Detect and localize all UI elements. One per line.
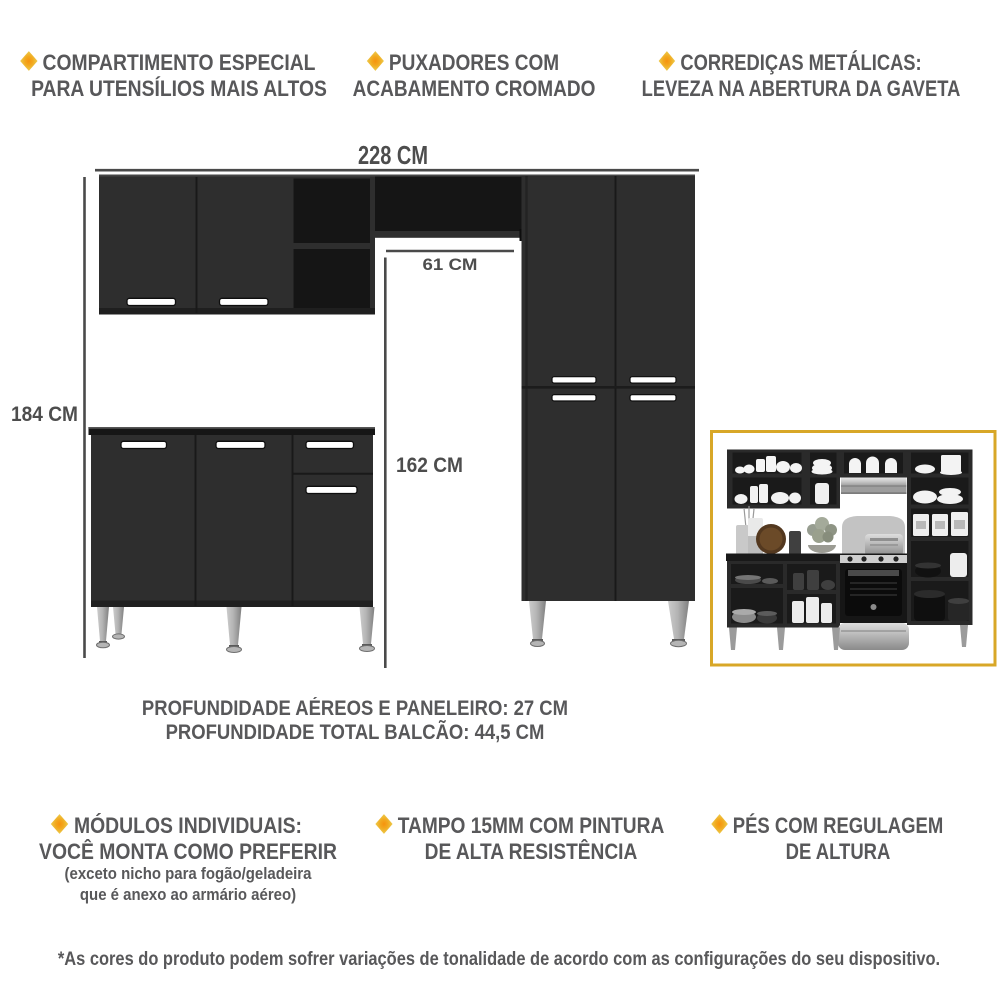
svg-text:228 CM: 228 CM <box>358 140 428 170</box>
svg-text:162 CM: 162 CM <box>396 454 463 477</box>
svg-text:184 CM: 184 CM <box>11 403 78 426</box>
svg-text:61 CM: 61 CM <box>423 256 478 274</box>
